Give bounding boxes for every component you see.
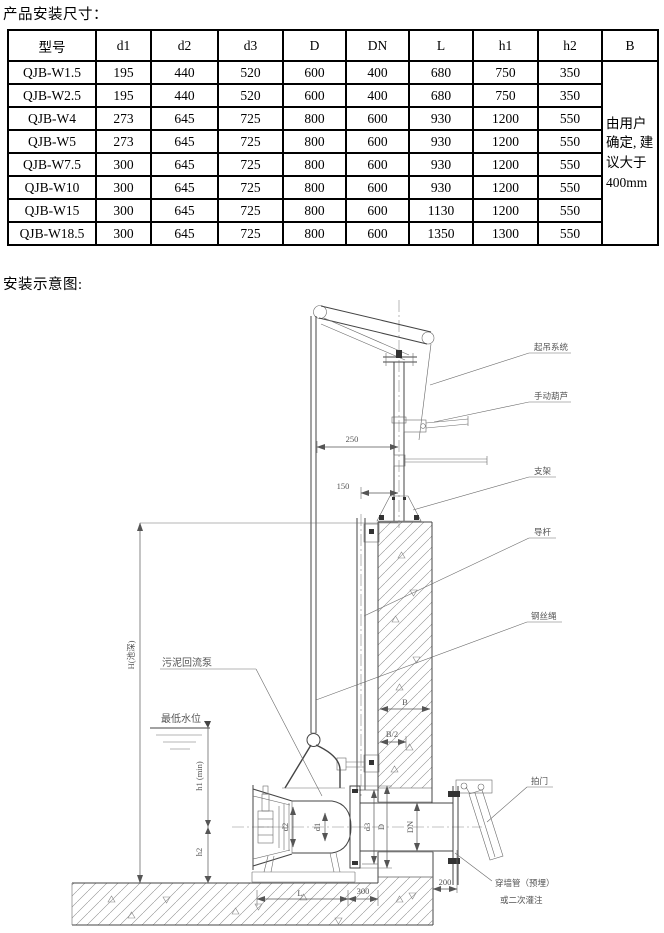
pool-floor bbox=[72, 877, 433, 925]
model-cell: QJB-W1.5 bbox=[8, 61, 96, 84]
value-cell: 273 bbox=[96, 107, 151, 130]
table-row: QJB-W18.530064572580060013501300550 bbox=[8, 222, 658, 245]
value-cell: 1200 bbox=[473, 107, 538, 130]
table-row: QJB-W52736457258006009301200550 bbox=[8, 130, 658, 153]
installation-diagram: 250 150 H(池深) h1 (min) h2 B B/2 L 300 20… bbox=[0, 295, 664, 933]
value-cell: 550 bbox=[538, 153, 602, 176]
value-cell: 680 bbox=[409, 61, 473, 84]
col-header: h1 bbox=[473, 30, 538, 61]
value-cell: 645 bbox=[151, 153, 218, 176]
dim-DN: DN bbox=[405, 821, 415, 833]
value-cell: 400 bbox=[346, 84, 409, 107]
value-cell: 550 bbox=[538, 107, 602, 130]
water-level-drawing bbox=[150, 721, 211, 749]
value-cell: 195 bbox=[96, 84, 151, 107]
value-cell: 645 bbox=[151, 107, 218, 130]
col-header: d2 bbox=[151, 30, 218, 61]
dim-h1: h1 (min) bbox=[194, 761, 204, 791]
value-cell: 300 bbox=[96, 153, 151, 176]
label-secondary-grouting: 或二次灌注 bbox=[500, 895, 543, 905]
label-lifting-system: 起吊系统 bbox=[534, 342, 569, 352]
value-cell: 600 bbox=[346, 199, 409, 222]
table-row: QJB-W7.53006457258006009301200550 bbox=[8, 153, 658, 176]
dim-250: 250 bbox=[346, 434, 359, 444]
value-cell: 600 bbox=[283, 84, 346, 107]
col-header: h2 bbox=[538, 30, 602, 61]
dim-h2: h2 bbox=[194, 848, 204, 857]
section-title-dimensions: 产品安装尺寸： bbox=[3, 3, 108, 24]
model-cell: QJB-W15 bbox=[8, 199, 96, 222]
value-cell: 725 bbox=[218, 130, 283, 153]
document-page: { "page": { "title_dimensions": "产品安装尺寸：… bbox=[0, 0, 664, 933]
label-manual-hoist: 手动葫芦 bbox=[534, 391, 568, 401]
value-cell: 550 bbox=[538, 130, 602, 153]
value-cell: 195 bbox=[96, 61, 151, 84]
value-cell: 800 bbox=[283, 153, 346, 176]
value-cell: 725 bbox=[218, 176, 283, 199]
value-cell: 800 bbox=[283, 130, 346, 153]
value-cell: 930 bbox=[409, 153, 473, 176]
value-cell: 600 bbox=[346, 107, 409, 130]
value-cell: 725 bbox=[218, 199, 283, 222]
value-cell: 1200 bbox=[473, 153, 538, 176]
value-cell: 300 bbox=[96, 176, 151, 199]
value-cell: 645 bbox=[151, 130, 218, 153]
value-cell: 550 bbox=[538, 176, 602, 199]
model-cell: QJB-W5 bbox=[8, 130, 96, 153]
value-cell: 440 bbox=[151, 84, 218, 107]
table-row: QJB-W103006457258006009301200550 bbox=[8, 176, 658, 199]
spec-table: 型号 d1 d2 d3 D DN L h1 h2 B QJB-W1.519544… bbox=[7, 29, 659, 246]
dim-B: B bbox=[402, 697, 408, 707]
col-header: L bbox=[409, 30, 473, 61]
value-cell: 930 bbox=[409, 130, 473, 153]
concrete-wall bbox=[378, 522, 433, 925]
col-header: B bbox=[602, 30, 658, 61]
value-cell: 600 bbox=[346, 176, 409, 199]
label-guide-rod: 导杆 bbox=[534, 527, 552, 537]
model-cell: QJB-W4 bbox=[8, 107, 96, 130]
model-cell: QJB-W7.5 bbox=[8, 153, 96, 176]
dim-L: L bbox=[297, 888, 302, 898]
label-wire-rope: 钢丝绳 bbox=[531, 611, 557, 621]
model-cell: QJB-W18.5 bbox=[8, 222, 96, 245]
label-sludge-return-pump: 污泥回流泵 bbox=[162, 656, 212, 669]
value-cell: 550 bbox=[538, 222, 602, 245]
flap-valve-drawing bbox=[448, 780, 503, 885]
value-cell: 550 bbox=[538, 199, 602, 222]
value-cell: 350 bbox=[538, 84, 602, 107]
value-cell: 645 bbox=[151, 176, 218, 199]
value-cell: 400 bbox=[346, 61, 409, 84]
value-cell: 930 bbox=[409, 176, 473, 199]
label-bracket: 支架 bbox=[534, 466, 552, 476]
value-cell: 645 bbox=[151, 199, 218, 222]
dim-200: 200 bbox=[439, 877, 452, 887]
table-row: QJB-W2.5195440520600400680750350 bbox=[8, 84, 658, 107]
value-cell: 645 bbox=[151, 222, 218, 245]
dim-d2: d2 bbox=[280, 823, 290, 832]
col-header: 型号 bbox=[8, 30, 96, 61]
value-cell: 600 bbox=[346, 153, 409, 176]
manual-hoist-drawing bbox=[394, 416, 487, 466]
value-cell: 520 bbox=[218, 84, 283, 107]
label-wall-pipe: 穿墙管（预埋） bbox=[495, 878, 555, 888]
col-header: d3 bbox=[218, 30, 283, 61]
value-cell: 930 bbox=[409, 107, 473, 130]
value-cell: 520 bbox=[218, 61, 283, 84]
label-flap-valve: 拍门 bbox=[531, 776, 548, 786]
col-header: d1 bbox=[96, 30, 151, 61]
model-cell: QJB-W10 bbox=[8, 176, 96, 199]
dim-300: 300 bbox=[357, 886, 370, 896]
value-cell: 725 bbox=[218, 222, 283, 245]
value-cell: 300 bbox=[96, 222, 151, 245]
value-cell: 600 bbox=[346, 130, 409, 153]
dim-D: D bbox=[376, 824, 386, 830]
value-cell: 750 bbox=[473, 61, 538, 84]
value-cell: 350 bbox=[538, 61, 602, 84]
table-row: QJB-W1530064572580060011301200550 bbox=[8, 199, 658, 222]
value-cell: 725 bbox=[218, 107, 283, 130]
value-cell: 1350 bbox=[409, 222, 473, 245]
value-cell: 600 bbox=[346, 222, 409, 245]
value-cell: 1200 bbox=[473, 199, 538, 222]
table-row: QJB-W1.5195440520600400680750350由用户确定, 建… bbox=[8, 61, 658, 84]
col-header: DN bbox=[346, 30, 409, 61]
dim-d1: d1 bbox=[312, 823, 322, 832]
value-cell: 1200 bbox=[473, 130, 538, 153]
value-cell: 1200 bbox=[473, 176, 538, 199]
value-cell: 300 bbox=[96, 199, 151, 222]
value-cell: 680 bbox=[409, 84, 473, 107]
dim-150: 150 bbox=[337, 481, 350, 491]
dim-H: H(池深) bbox=[126, 640, 136, 669]
label-lowest-water-level: 最低水位 bbox=[161, 712, 201, 725]
section-title-diagram: 安装示意图: bbox=[3, 273, 83, 294]
value-cell: 440 bbox=[151, 61, 218, 84]
value-cell: 750 bbox=[473, 84, 538, 107]
dim-B-half: B/2 bbox=[386, 729, 398, 739]
value-cell: 600 bbox=[283, 61, 346, 84]
model-cell: QJB-W2.5 bbox=[8, 84, 96, 107]
value-cell: 800 bbox=[283, 107, 346, 130]
value-cell: 1300 bbox=[473, 222, 538, 245]
table-row: QJB-W42736457258006009301200550 bbox=[8, 107, 658, 130]
value-cell: 800 bbox=[283, 176, 346, 199]
dim-d3: d3 bbox=[362, 823, 372, 832]
value-cell: 800 bbox=[283, 222, 346, 245]
header-row: 型号 d1 d2 d3 D DN L h1 h2 B bbox=[8, 30, 658, 61]
guide-rod-drawing bbox=[337, 514, 379, 796]
col-header: D bbox=[283, 30, 346, 61]
value-cell: 1130 bbox=[409, 199, 473, 222]
value-cell: 725 bbox=[218, 153, 283, 176]
value-cell: 800 bbox=[283, 199, 346, 222]
value-cell: 273 bbox=[96, 130, 151, 153]
b-note-cell: 由用户确定, 建议大于400mm bbox=[602, 61, 658, 245]
